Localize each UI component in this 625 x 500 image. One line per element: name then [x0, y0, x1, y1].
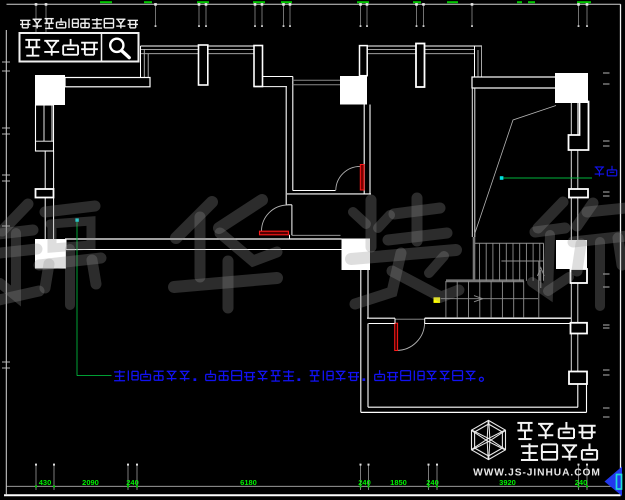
svg-text:2090: 2090 [82, 478, 99, 487]
svg-text:1850: 1850 [390, 478, 407, 487]
svg-text:430: 430 [39, 478, 52, 487]
svg-text:3920: 3920 [499, 478, 516, 487]
svg-text:240: 240 [358, 478, 371, 487]
svg-text:240: 240 [126, 478, 139, 487]
svg-text:6180: 6180 [240, 478, 257, 487]
svg-text:WWW.JS-JINHUA.COM: WWW.JS-JINHUA.COM [473, 468, 601, 479]
svg-text:240: 240 [575, 478, 588, 487]
svg-text:240: 240 [426, 478, 439, 487]
